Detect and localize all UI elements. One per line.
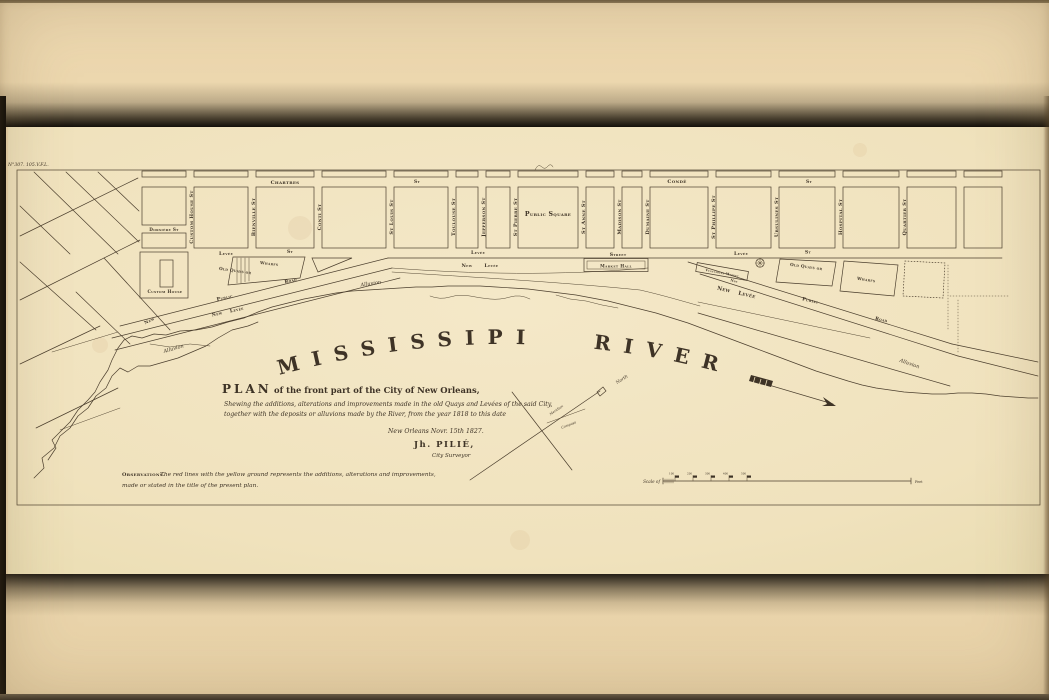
map-author: Jh. PILIÉ, — [413, 438, 475, 450]
label-st-louis-st: St Louis St — [389, 199, 395, 234]
label-conti-st: Conti St — [317, 204, 323, 231]
map-author-role: City Surveyor — [432, 453, 471, 459]
label-toulouse-st: Toulouse St — [451, 198, 457, 236]
label-custom-house-st: Custom House St — [189, 190, 195, 243]
label-ursulines-st: Ursulines St — [774, 197, 780, 237]
label-quartier-st: Quartier St — [902, 199, 908, 236]
label-madison-st: Madison St — [617, 199, 623, 234]
label-jefferson-st: Jefferson St — [481, 197, 487, 237]
label-levee-right-st: St — [805, 251, 811, 256]
label-public-square: Public Square — [525, 211, 571, 218]
scroll-bottom-shadow — [0, 574, 1049, 616]
scale-unit: Feet — [915, 480, 923, 484]
label-new-levee-center: New Levée — [462, 263, 499, 269]
poster-right-edge — [1043, 96, 1049, 700]
poster-background: N°307. 105.V.F.L. — [0, 0, 1049, 700]
label-street-center: Street — [610, 252, 627, 258]
poster-left-edge — [0, 96, 6, 700]
label-conde-st: St — [806, 180, 812, 185]
label-market-hall: Market Hall — [600, 264, 632, 269]
scale-tick: 400 — [723, 472, 728, 476]
label-st-anne-st: St Anne St — [581, 200, 587, 234]
observations-label: Observations. — [122, 472, 165, 478]
map-subtitle-1: Shewing the additions, alterations and i… — [224, 401, 552, 408]
label-bienville-st: Bienville St — [251, 198, 257, 236]
label-levee-center: Levée — [471, 250, 485, 256]
map-dateline: New Orleans Novr. 15th 1827. — [387, 428, 484, 435]
label-conde: Condé — [667, 179, 686, 185]
scale-label: Scale of — [643, 479, 661, 484]
label-dorsiere-st: Dorsière St — [149, 227, 179, 232]
map-subtitle-2: together with the deposits or alluvions … — [224, 411, 506, 418]
label-st-phillipe-st: St Phillipe St — [711, 195, 717, 239]
scale-tick: 300 — [705, 472, 710, 476]
label-chartres: Chartres — [271, 180, 300, 186]
label-levee-right: Levée — [734, 251, 748, 257]
label-levee-left-st: St — [287, 250, 293, 255]
label-custom-house: Custom House — [148, 289, 183, 294]
label-levee-left: Levée — [219, 251, 233, 257]
label-chartres-st: St — [414, 180, 420, 185]
map-title-rest: of the front part of the City of New Orl… — [274, 385, 480, 395]
label-st-pierre-st: St Pierre St — [513, 198, 519, 237]
scroll-top-shadow — [0, 82, 1049, 127]
scale-tick: 100 — [669, 472, 674, 476]
poster-top-edge — [0, 0, 1049, 3]
scale-tick: 500 — [741, 472, 746, 476]
observations-line2: made or stated in the title of the prese… — [122, 483, 258, 489]
poster-bottom-edge — [0, 694, 1049, 700]
scale-tick: 200 — [687, 472, 692, 476]
observations-line1: The red lines with the yellow ground rep… — [160, 472, 436, 478]
map-title-word: PLAN — [222, 382, 272, 396]
plate-ref: N°307. 105.V.F.L. — [7, 162, 49, 168]
label-dumaine-st: Dumaine St — [645, 199, 651, 234]
label-hospital-st: Hospital St — [838, 199, 844, 235]
